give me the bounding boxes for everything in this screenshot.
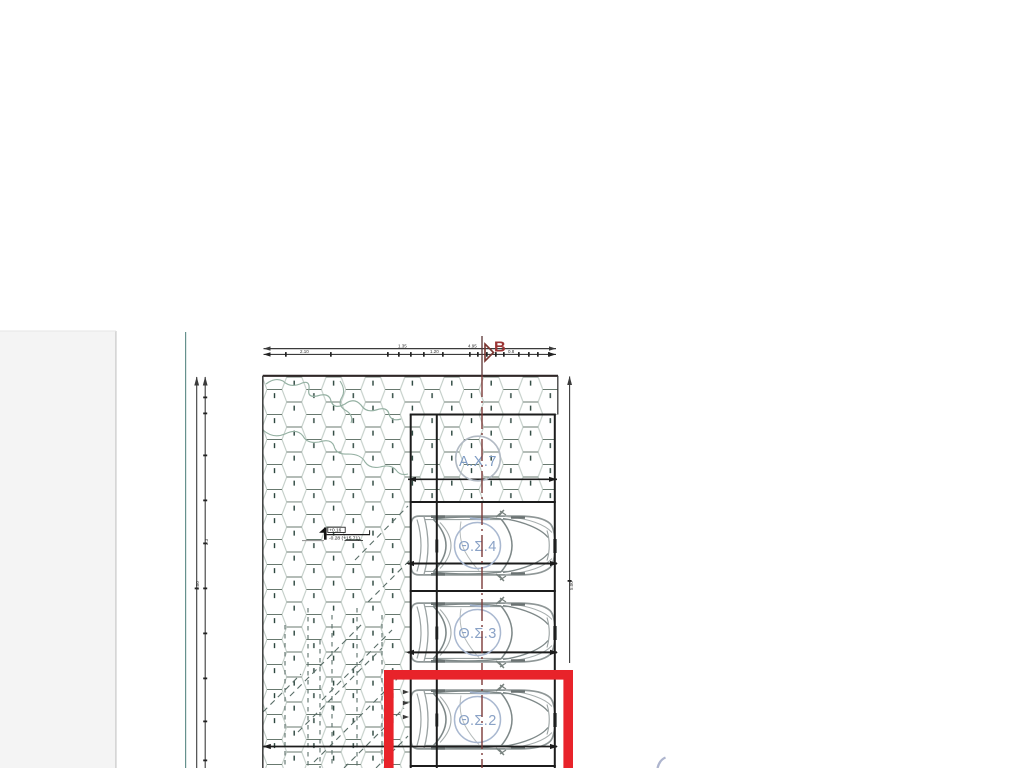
svg-text:Α.Χ.7: Α.Χ.7 bbox=[459, 454, 497, 470]
svg-text:Θ.Σ.2: Θ.Σ.2 bbox=[458, 713, 496, 729]
svg-text:1.35: 1.35 bbox=[398, 343, 407, 348]
svg-text:1.20: 1.20 bbox=[430, 349, 439, 354]
svg-text:2.3: 2.3 bbox=[204, 538, 209, 545]
svg-text:5.00: 5.00 bbox=[569, 581, 574, 590]
svg-text:2.10: 2.10 bbox=[300, 349, 309, 354]
svg-text:+0.16: +0.16 bbox=[329, 528, 341, 534]
svg-text:4.95: 4.95 bbox=[468, 343, 477, 348]
svg-text:4.50: 4.50 bbox=[195, 581, 200, 590]
svg-text:Β: Β bbox=[494, 339, 506, 355]
svg-text:Θ.Σ.4: Θ.Σ.4 bbox=[458, 539, 496, 555]
svg-text:Θ.Σ.3: Θ.Σ.3 bbox=[458, 626, 496, 642]
svg-text:0.8: 0.8 bbox=[508, 349, 515, 354]
